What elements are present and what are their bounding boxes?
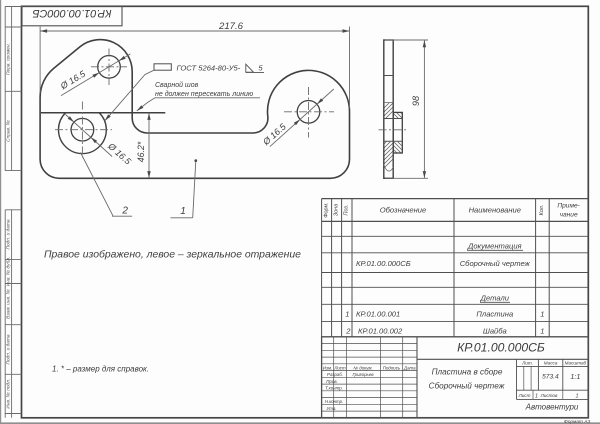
svg-text:Приме-: Приме- — [557, 203, 580, 210]
svg-text:№ докум.: № докум. — [353, 365, 372, 370]
svg-text:2: 2 — [121, 205, 128, 216]
svg-text:КР.01.00.001: КР.01.00.001 — [356, 310, 400, 319]
svg-text:Зона: Зона — [333, 204, 339, 216]
svg-text:Справ. №: Справ. № — [5, 120, 11, 142]
svg-text:Подп. и дата: Подп. и дата — [5, 334, 11, 364]
svg-text:Детали: Детали — [480, 294, 510, 303]
svg-text:Обозначение: Обозначение — [380, 206, 427, 215]
svg-text:Подп. и дата: Подп. и дата — [5, 219, 11, 249]
svg-text:Перв. примен.: Перв. примен. — [5, 43, 11, 75]
svg-text:1: 1 — [576, 393, 579, 399]
svg-text:Лист: Лист — [518, 393, 531, 398]
svg-text:Правое изображено, левое – зер: Правое изображено, левое – зеркальное от… — [44, 249, 301, 261]
svg-text:Поз.: Поз. — [344, 205, 350, 216]
svg-text:1:1: 1:1 — [570, 372, 580, 381]
svg-text:1: 1 — [535, 393, 538, 399]
svg-text:1: 1 — [540, 327, 544, 336]
svg-text:217.6: 217.6 — [218, 21, 244, 32]
svg-text:1: 1 — [180, 206, 186, 217]
svg-text:Инв. № дубл.: Инв. № дубл. — [5, 257, 11, 287]
svg-text:Утв.: Утв. — [327, 406, 337, 411]
svg-text:КР.01.00.002: КР.01.00.002 — [358, 327, 403, 336]
svg-text:Пров.: Пров. — [326, 379, 338, 384]
svg-text:Наименование: Наименование — [469, 206, 521, 215]
svg-text:Формат А3: Формат А3 — [564, 419, 591, 424]
svg-text:573.4: 573.4 — [542, 374, 559, 381]
svg-text:Разраб.: Разраб. — [327, 372, 343, 377]
svg-text:Изм.: Изм. — [323, 365, 332, 370]
svg-text:ГОСТ 5264-80-У5-: ГОСТ 5264-80-У5- — [177, 64, 241, 73]
svg-text:не должен пересекать линию: не должен пересекать линию — [155, 90, 254, 98]
svg-text:Пластина в сборе: Пластина в сборе — [432, 368, 503, 377]
svg-text:КР.01.00.000СБ: КР.01.00.000СБ — [32, 7, 111, 19]
svg-text:Инв. № подл.: Инв. № подл. — [5, 379, 11, 409]
svg-text:Подпись: Подпись — [383, 365, 401, 370]
svg-text:Масса: Масса — [544, 361, 558, 366]
svg-text:Сборочный чертеж: Сборочный чертеж — [460, 259, 531, 268]
svg-text:Григорьев: Григорьев — [352, 372, 374, 377]
svg-text:Дата: Дата — [403, 365, 416, 370]
svg-text:Взам. инв. №: Взам. инв. № — [5, 289, 11, 319]
svg-text:Автовентури: Автовентури — [525, 403, 579, 412]
svg-text:Листов: Листов — [540, 393, 558, 398]
svg-text:Масштаб: Масштаб — [565, 361, 587, 366]
svg-text:Шайба: Шайба — [483, 327, 507, 336]
svg-text:1: 1 — [540, 310, 544, 319]
svg-text:КР.01.00.000СБ: КР.01.00.000СБ — [356, 259, 411, 268]
svg-text:Сварной шов: Сварной шов — [155, 81, 199, 89]
svg-text:Т.контр.: Т.контр. — [325, 386, 343, 391]
svg-text:1. * – размер для справок.: 1. * – размер для справок. — [52, 365, 149, 374]
svg-text:Пластина: Пластина — [476, 310, 513, 319]
svg-text:Сборочный чертеж: Сборочный чертеж — [429, 382, 505, 391]
svg-text:Кол.: Кол. — [539, 205, 545, 216]
svg-text:98: 98 — [411, 95, 421, 106]
svg-text:46.2*: 46.2* — [136, 141, 146, 162]
svg-text:Лист: Лист — [333, 365, 346, 370]
svg-text:Лит.: Лит. — [521, 361, 533, 366]
svg-text:1: 1 — [345, 310, 349, 319]
svg-text:чание: чание — [560, 212, 578, 219]
svg-text:КР.01.00.000СБ: КР.01.00.000СБ — [457, 341, 545, 355]
svg-text:Документация: Документация — [467, 242, 522, 251]
svg-text:Форм.: Форм. — [324, 202, 330, 217]
svg-text:Н.контр.: Н.контр. — [325, 399, 344, 404]
svg-text:2: 2 — [345, 327, 351, 336]
